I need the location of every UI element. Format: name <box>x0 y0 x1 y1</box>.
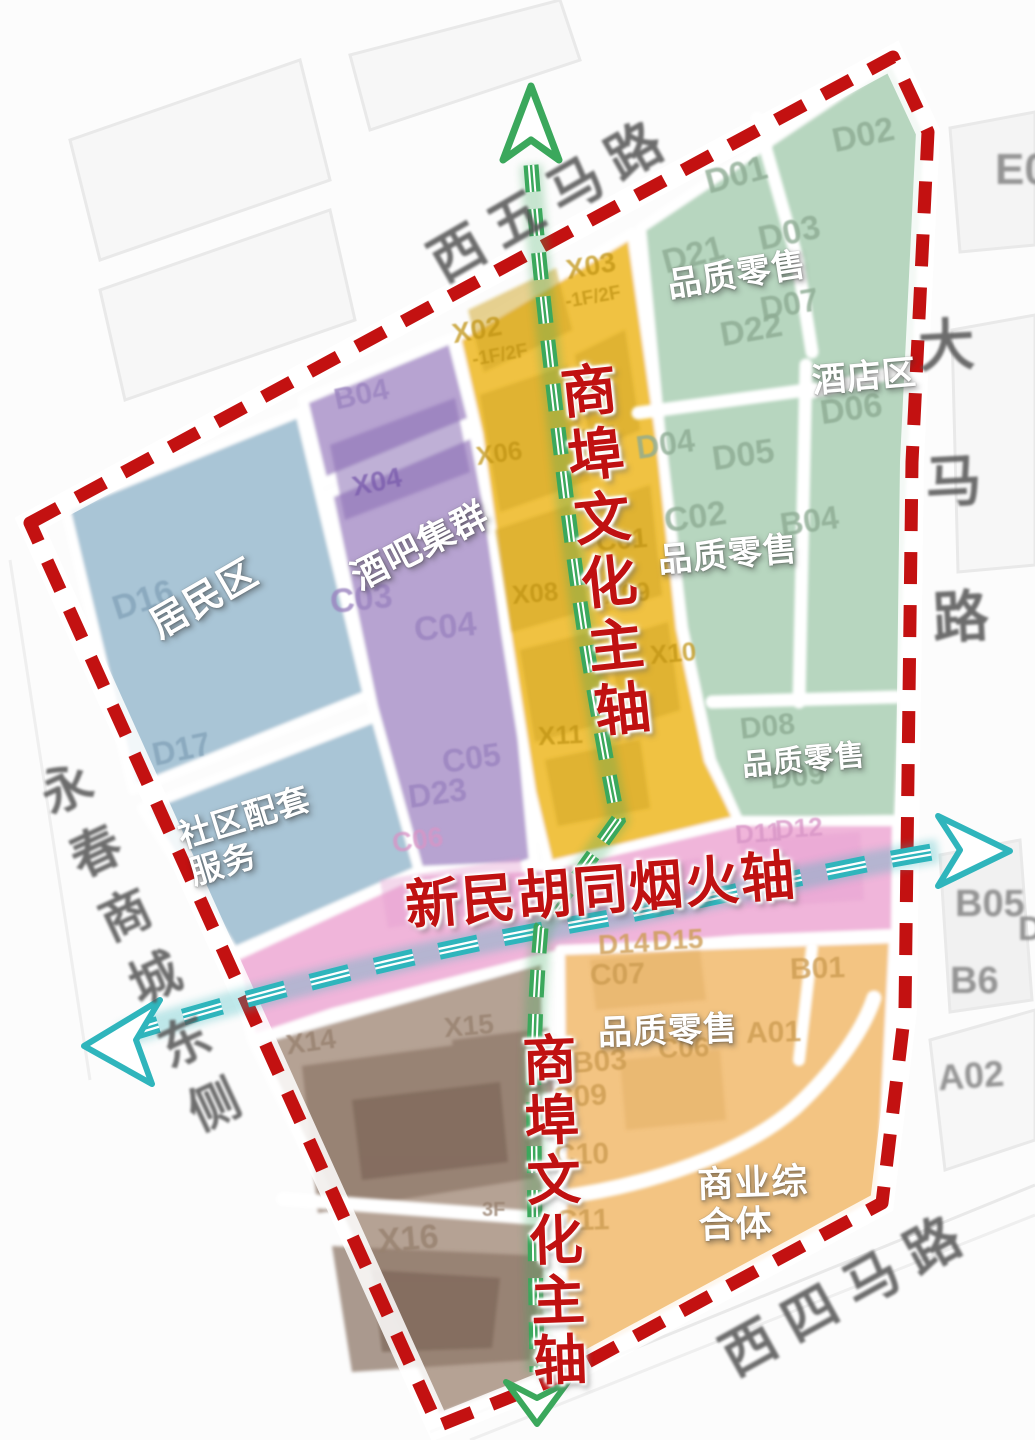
block-label-A01: A01 <box>745 1017 801 1049</box>
block-label-D05: D05 <box>710 434 776 476</box>
block-label-B01: B01 <box>789 953 845 985</box>
block-label-D08: D08 <box>739 709 797 745</box>
label-complex-line1: 商业综 <box>697 1160 809 1205</box>
block-label-C04: C04 <box>412 607 478 647</box>
block-label-D04: D04 <box>634 424 697 464</box>
arrowhead-up-icon <box>503 86 559 160</box>
block-label-X15: X15 <box>443 1010 495 1042</box>
block-label-B6: B6 <box>950 962 999 1000</box>
block-label-X08: X08 <box>511 578 559 608</box>
site-plan-map: D16D17B04X04C03C04C05D23X02-1F/2FX03-1F/… <box>0 0 1035 1440</box>
block-label-C05: C05 <box>440 738 503 778</box>
block-label-A02: A02 <box>937 1056 1005 1097</box>
block-label-X11: X11 <box>537 721 583 749</box>
label-retail-south: 品质零售 <box>597 1010 738 1054</box>
block-label-X16: X16 <box>377 1219 440 1258</box>
block-label-C02: C02 <box>662 496 728 538</box>
block-label-D14: D14 <box>597 929 650 960</box>
block-label-X14: X14 <box>284 1025 337 1060</box>
label-complex-line2: 合体 <box>698 1201 810 1246</box>
block-label-D23: D23 <box>406 773 469 813</box>
block-label-C07: C07 <box>589 959 645 991</box>
block-label-B05: B05 <box>955 885 1025 923</box>
block-label-E0: E0 <box>995 148 1035 192</box>
block-label-D12: D12 <box>774 813 823 842</box>
block-label-3F: 3F <box>482 1200 505 1220</box>
block-label-X06: X06 <box>474 437 523 469</box>
label-culture-axis-bottom: 商埠文化主轴 <box>512 1031 587 1393</box>
block-label-D15: D15 <box>651 925 704 956</box>
block-label-D: D <box>1018 912 1035 946</box>
block-label-C06: C06 <box>390 823 445 858</box>
block-label-X10: X10 <box>649 638 697 668</box>
label-commercial-complex: 商业综 合体 <box>697 1160 811 1247</box>
